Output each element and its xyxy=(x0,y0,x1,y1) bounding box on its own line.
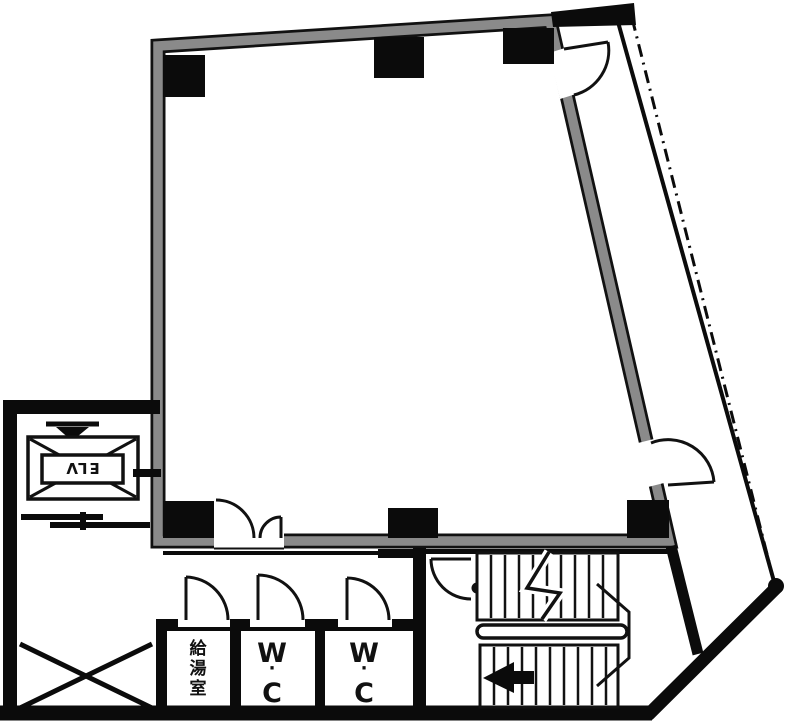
wc1-label-c: C xyxy=(262,678,282,709)
column-bottom-right xyxy=(627,500,669,538)
elevator-door-track xyxy=(21,514,103,520)
wc1-label-dot: · xyxy=(269,658,276,679)
service-door-sills xyxy=(178,619,392,627)
elevator-door-track xyxy=(50,522,150,528)
floor-plan-page: ELV xyxy=(0,0,787,728)
wc2-label-dot: · xyxy=(361,658,368,679)
stair-handrail xyxy=(477,625,627,638)
kitchenette-left-wall xyxy=(156,619,167,712)
kitchenette-label-char3: 室 xyxy=(190,678,207,699)
wc2-label-c: C xyxy=(354,678,374,709)
kitchenette-wc-divider xyxy=(230,619,241,712)
column-top-right xyxy=(503,28,554,64)
column-bottom-middle xyxy=(388,508,438,538)
corridor-top-line xyxy=(163,551,413,555)
stairhall-left-wall xyxy=(413,548,426,712)
elevator-door-meet xyxy=(80,512,86,530)
kitchenette-label-char1: 給 xyxy=(190,638,208,659)
column-top-middle xyxy=(374,37,424,78)
elevator-label: ELV xyxy=(64,459,99,477)
staircase xyxy=(477,552,629,707)
kitchenette-label-char2: 湯 xyxy=(190,659,207,679)
lobby-wall-stub xyxy=(133,469,161,477)
column-top-left xyxy=(163,55,205,97)
column-bottom-left xyxy=(163,501,214,538)
wc-divider xyxy=(315,619,325,712)
floor-plan-drawing: ELV xyxy=(0,0,787,728)
corridor-top-line-thick xyxy=(378,549,413,558)
